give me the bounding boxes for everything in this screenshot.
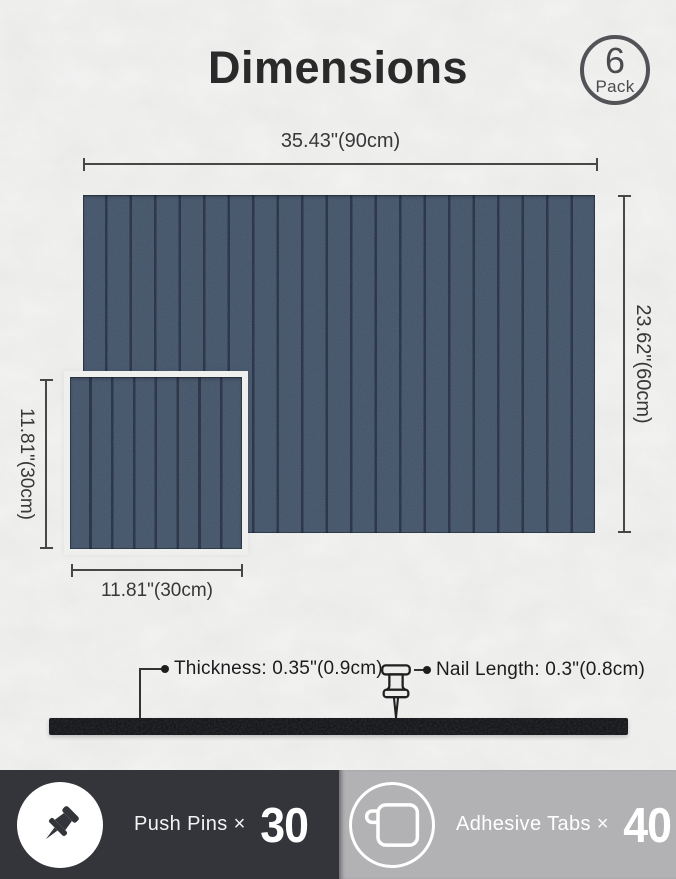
large-panel-height-label: 23.62"(60cm) bbox=[632, 254, 654, 474]
panel-edge-side-view bbox=[49, 718, 628, 735]
pack-count: 6 bbox=[605, 45, 625, 77]
product-dimensions-infographic: Dimensions 6 Pack 35.43"(90cm) 23.62"(60… bbox=[0, 0, 676, 879]
thickness-leader-line bbox=[139, 668, 162, 670]
nail-length-annotation: Nail Length: 0.3"(0.8cm) bbox=[436, 659, 645, 681]
adhesive-tabs-section: Adhesive Tabs × 40 bbox=[339, 770, 676, 879]
adhesive-tab-icon-circle bbox=[349, 782, 435, 868]
push-pin-icon bbox=[34, 799, 86, 851]
dimension-line-large-width bbox=[83, 163, 598, 165]
thickness-bullet-dot bbox=[161, 665, 169, 673]
large-panel-width-label: 35.43"(90cm) bbox=[83, 130, 598, 153]
push-pins-section: Push Pins × 30 bbox=[0, 770, 339, 879]
pack-label: Pack bbox=[596, 78, 635, 95]
push-pin-outline-icon bbox=[376, 664, 416, 719]
bar-texture bbox=[49, 718, 628, 735]
thickness-annotation: Thickness: 0.35"(0.9cm) bbox=[174, 658, 383, 680]
small-panel-outline bbox=[64, 371, 248, 555]
page-title: Dimensions bbox=[0, 42, 676, 94]
adhesive-tab-icon bbox=[364, 797, 420, 853]
adhesive-tabs-count: 40 bbox=[623, 800, 671, 849]
panel-felt-texture bbox=[70, 377, 242, 549]
adhesive-tabs-label: Adhesive Tabs × bbox=[456, 813, 609, 836]
small-panel-height-label: 11.81"(30cm) bbox=[15, 364, 37, 564]
push-pins-count: 30 bbox=[260, 800, 308, 849]
small-panel-width-label: 11.81"(30cm) bbox=[61, 580, 253, 602]
thickness-leader-line bbox=[139, 668, 141, 718]
push-pin-icon-circle bbox=[17, 782, 103, 868]
push-pins-label: Push Pins × bbox=[134, 813, 246, 836]
pack-count-badge: 6 Pack bbox=[580, 35, 650, 105]
nail-bullet-dot bbox=[423, 666, 431, 674]
dimension-line-small-height bbox=[45, 379, 47, 549]
small-acoustic-panel bbox=[70, 377, 242, 549]
dimension-line-small-width bbox=[71, 569, 243, 571]
dimension-line-large-height bbox=[623, 195, 625, 533]
